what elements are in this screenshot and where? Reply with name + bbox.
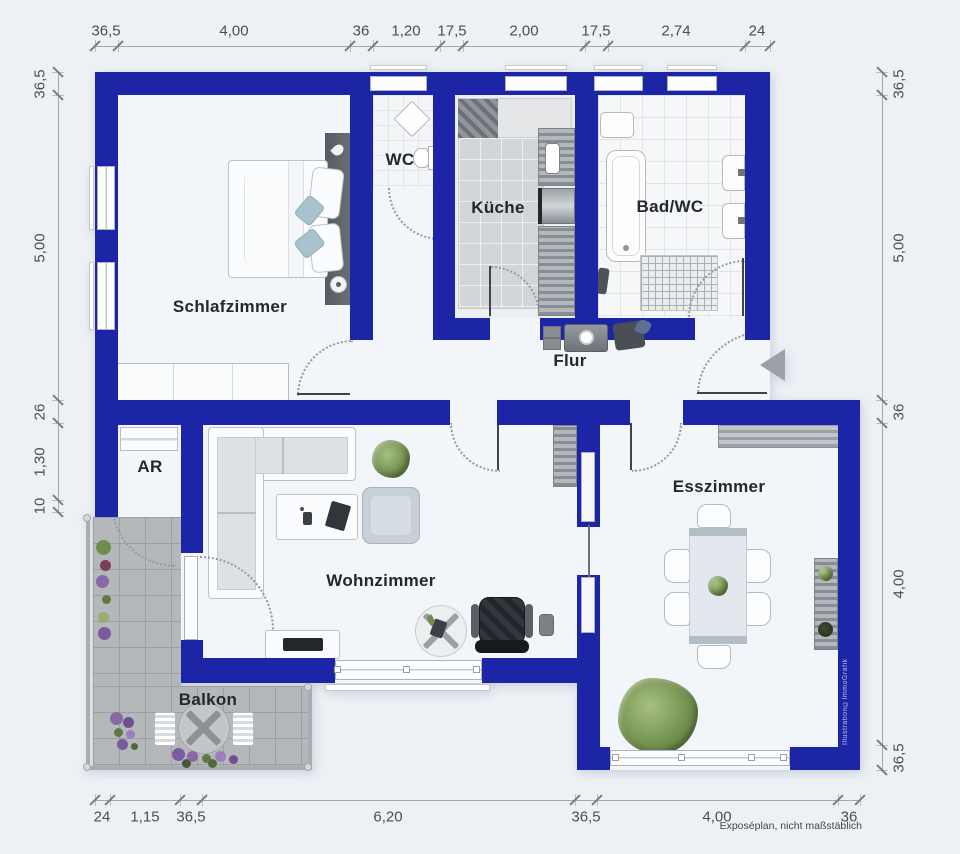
balcony-bench [232,712,254,746]
railing-post [304,763,312,771]
sofa-seam [217,512,256,514]
dim-label: 36,5 [891,743,908,772]
dim-label: 4,00 [219,23,248,40]
room-label-ar: AR [137,457,162,477]
dining-chair [664,592,690,626]
door-leaf [497,423,499,470]
armchair-cushion [371,496,411,535]
dimension-line-top [95,46,770,48]
desk-chair [479,597,525,645]
room-label-kueche: Küche [471,198,524,218]
railing-post [83,514,91,522]
window[interactable] [97,262,115,330]
window-sill [325,684,490,691]
desk-chair-arm [471,604,479,638]
dim-label: 36,5 [32,69,49,98]
table-plant-icon [708,576,728,596]
sideboard-plant-icon [818,566,833,581]
wall [181,400,203,553]
wall [683,400,860,425]
wardrobe-top [718,424,840,448]
dim-label: 24 [749,23,766,40]
dining-chair [664,549,690,583]
dim-label: 5,00 [891,233,908,262]
bathtub-drain [623,245,629,251]
window-knob [334,666,341,673]
door-leaf [630,423,632,470]
phone-icon [303,512,312,525]
dining-table-rail [689,636,747,644]
wall [350,95,373,340]
kitchen-cabinets [538,226,575,316]
room-label-schlafzimmer: Schlafzimmer [173,297,287,317]
dim-label: 4,00 [891,569,908,598]
door-leaf [489,266,491,316]
plant-icon [372,440,410,478]
window[interactable] [505,76,567,91]
window-sill [505,65,567,70]
kitchen-sink [545,143,560,174]
floorplan-screenshot: Illustration©ImmoGrafik Schlafzimmer WC … [0,0,960,854]
window-sill [370,65,427,70]
remote-dot [300,507,304,511]
oven [540,188,575,224]
room-label-balkon: Balkon [179,690,237,710]
desk-chair-back [475,640,529,653]
window-sill [89,166,94,230]
wall [181,658,335,683]
washing-machine [600,112,634,138]
balcony-railing-left [86,517,90,770]
duvet-fold [244,172,274,266]
wall [433,318,490,340]
dim-label: 1,20 [391,23,420,40]
wall [745,95,770,340]
dim-label: 2,00 [509,23,538,40]
dining-chair [697,645,731,669]
glass-door-panel [581,577,595,633]
glass-door-line [588,525,590,577]
ar-shelf [120,427,178,451]
wall [577,747,610,770]
oven-handle [538,188,542,224]
window-knob [612,754,619,761]
dim-label: 1,15 [130,809,159,826]
shelf-small [543,326,561,350]
footer-note: Exposéplan, nicht maßstäblich [602,820,862,832]
dim-label: 10 [32,498,49,515]
room-label-wohnzimmer: Wohnzimmer [326,571,435,591]
balcony-railing-right [308,686,312,770]
balcony-railing-bottom [86,766,312,770]
dining-chair [697,504,731,528]
dim-label: 2,74 [661,23,690,40]
dim-label: 36,5 [571,809,600,826]
flower-cluster-icon [172,748,185,761]
toilet-bowl [413,148,429,168]
window-sill [667,65,717,70]
flower-pot-icon [96,540,111,555]
window[interactable] [370,76,427,91]
flower-cluster-icon [110,712,123,725]
illustrator-credit: Illustration©ImmoGrafik [842,625,849,745]
window-knob [403,666,410,673]
balcony-door-leaf [184,556,198,640]
window-sill [594,65,643,70]
dim-label: 36,5 [91,23,120,40]
balcony-bench [154,712,176,746]
entrance-arrow-icon [760,349,785,381]
room-label-wc: WC [386,150,415,170]
dim-label: 17,5 [581,23,610,40]
kitchen-corner-unit [458,99,498,138]
dim-label: 1,30 [32,447,49,476]
wall [790,747,860,770]
dim-label: 26 [32,404,49,421]
room-label-bad: Bad/WC [637,197,704,217]
window-knob [473,666,480,673]
dim-label: 36 [353,23,370,40]
door-leaf [297,393,350,395]
window-knob [678,754,685,761]
window-sill [89,262,94,330]
speaker-center [336,282,341,287]
window[interactable] [594,76,643,91]
window-knob [748,754,755,761]
desk-chair-arm [525,604,533,638]
railing-post [304,683,312,691]
dim-label: 36,5 [891,69,908,98]
stool [539,614,554,636]
room-label-flur: Flur [553,351,586,371]
dim-label: 17,5 [437,23,466,40]
dim-label: 24 [94,809,111,826]
wall [575,95,598,340]
window[interactable] [667,76,717,91]
window[interactable] [610,750,790,766]
glass-door-panel [581,452,595,522]
sofa-seam [282,437,284,474]
door-leaf [742,258,744,316]
dim-label: 36 [891,404,908,421]
dining-chair [745,592,771,626]
dim-label: 6,20 [373,809,402,826]
wall [482,658,577,683]
dimension-line-left [58,72,60,512]
floorplan: Illustration©ImmoGrafik Schlafzimmer WC … [0,0,960,854]
wall [95,400,450,425]
dim-label: 36,5 [176,809,205,826]
window[interactable] [97,166,115,230]
tv-icon [283,638,323,651]
washer-door [579,330,594,345]
dim-label: 5,00 [32,233,49,262]
railing-post [83,763,91,771]
sideboard-plant-dark [818,622,833,637]
dimension-line-bottom [95,800,860,802]
entrance-door-leaf [697,392,767,394]
room-label-esszimmer: Esszimmer [673,477,765,497]
dining-chair [745,549,771,583]
wall [497,400,630,425]
wall [433,95,455,340]
dining-table-rail [689,528,747,536]
window-knob [780,754,787,761]
cabinet [553,425,577,487]
wardrobe [113,363,289,401]
